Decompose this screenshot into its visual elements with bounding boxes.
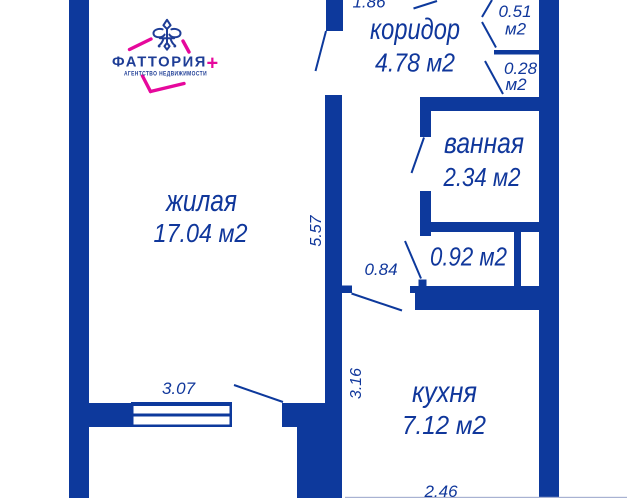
svg-text:3.16: 3.16 bbox=[348, 368, 365, 399]
svg-text:2.34 м2: 2.34 м2 bbox=[443, 162, 521, 192]
svg-text:5.57: 5.57 bbox=[308, 214, 325, 246]
svg-text:0.92 м2: 0.92 м2 bbox=[430, 242, 507, 272]
svg-text:0.84: 0.84 bbox=[364, 260, 397, 279]
svg-text:АГЕНТСТВО НЕДВИЖИМОСТИ: АГЕНТСТВО НЕДВИЖИМОСТИ bbox=[124, 70, 207, 77]
svg-text:17.04 м2: 17.04 м2 bbox=[154, 218, 248, 248]
svg-text:ванная: ванная bbox=[444, 127, 524, 160]
svg-text:7.12 м2: 7.12 м2 bbox=[402, 410, 486, 440]
svg-text:жилая: жилая bbox=[164, 183, 237, 218]
svg-text:+: + bbox=[207, 53, 219, 75]
svg-text:1.86: 1.86 bbox=[352, 0, 386, 12]
svg-text:3.07: 3.07 bbox=[162, 379, 196, 398]
svg-text:0.51: 0.51 bbox=[498, 2, 531, 21]
svg-text:кухня: кухня bbox=[412, 376, 477, 409]
svg-text:4.78 м2: 4.78 м2 bbox=[375, 48, 455, 78]
svg-text:м2: м2 bbox=[505, 20, 527, 39]
svg-text:ФАТТОРИЯ: ФАТТОРИЯ bbox=[112, 53, 207, 70]
svg-text:м2: м2 bbox=[505, 75, 527, 94]
svg-text:коридор: коридор bbox=[370, 13, 460, 46]
svg-text:2.46: 2.46 bbox=[423, 482, 458, 498]
